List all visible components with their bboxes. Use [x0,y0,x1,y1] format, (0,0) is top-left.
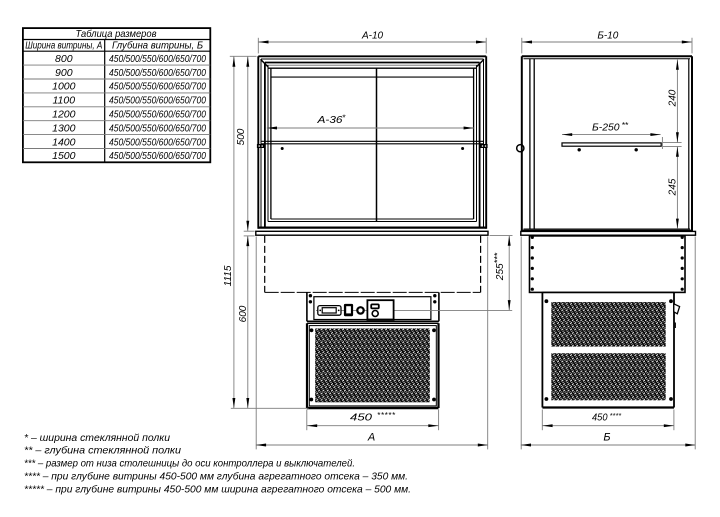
svg-text:Ширина витрины, А: Ширина витрины, А [25,41,102,52]
svg-text:900: 900 [55,67,73,79]
svg-text:А-36: А-36 [316,114,342,126]
svg-text:1000: 1000 [52,81,76,93]
svg-text:***** – при глубине витрины 45: ***** – при глубине витрины 450-500 мм ш… [24,484,411,496]
svg-text:Б-10: Б-10 [597,31,618,42]
svg-text:А: А [367,432,375,444]
svg-text:500: 500 [236,128,247,145]
svg-text:450/500/550/600/650/700: 450/500/550/600/650/700 [109,81,206,93]
svg-text:450/500/550/600/650/700: 450/500/550/600/650/700 [109,150,206,162]
svg-text:Б: Б [603,432,610,444]
svg-text:1100: 1100 [53,95,76,107]
svg-text:*****: ***** [377,411,396,420]
svg-text:600: 600 [238,305,249,322]
svg-text:**: ** [622,120,629,130]
svg-text:Глубина витрины, Б: Глубина витрины, Б [112,40,203,52]
svg-text:А-10: А-10 [361,31,384,42]
svg-text:Б-250: Б-250 [592,121,620,133]
svg-text:800: 800 [55,53,73,65]
svg-text:** – глубина стеклянной полки: ** – глубина стеклянной полки [24,445,181,457]
svg-text:245: 245 [667,178,678,196]
svg-text:**** – при глубине витрины 450: **** – при глубине витрины 450-500 мм гл… [24,471,408,483]
svg-text:****: **** [610,411,623,420]
svg-text:1115: 1115 [223,265,234,286]
svg-text:450/500/550/600/650/700: 450/500/550/600/650/700 [109,122,206,134]
svg-text:450/500/550/600/650/700: 450/500/550/600/650/700 [109,67,206,79]
svg-text:1400: 1400 [52,136,76,148]
svg-text:450/500/550/600/650/700: 450/500/550/600/650/700 [109,53,206,65]
svg-text:450/500/550/600/650/700: 450/500/550/600/650/700 [109,95,206,107]
svg-text:450: 450 [350,411,372,423]
svg-text:1500: 1500 [52,150,76,162]
svg-text:450: 450 [592,411,608,423]
svg-text:* – ширина стеклянной полки: * – ширина стеклянной полки [24,432,170,444]
svg-text:450/500/550/600/650/700: 450/500/550/600/650/700 [109,136,206,148]
svg-text:1200: 1200 [52,109,76,121]
svg-text:*** – размер от низа столешниц: *** – размер от низа столешницы до оси к… [24,458,355,470]
svg-text:1300: 1300 [52,122,76,134]
svg-text:450/500/550/600/650/700: 450/500/550/600/650/700 [109,109,206,121]
svg-text:240: 240 [667,89,678,107]
svg-text:Таблица размеров: Таблица размеров [76,28,157,40]
